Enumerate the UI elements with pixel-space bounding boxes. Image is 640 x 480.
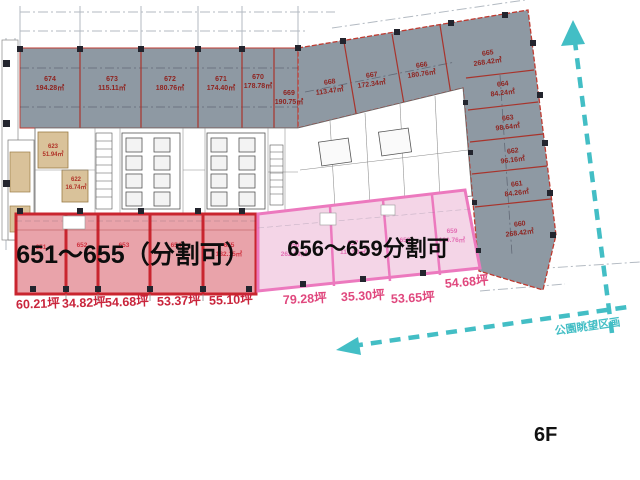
room-area: 190.75㎡ <box>275 97 303 106</box>
room-area: 51.94㎡ <box>42 150 63 158</box>
tsubo-651: 60.21坪 <box>16 296 61 312</box>
room-number: 673 <box>106 76 118 83</box>
tsubo-658: 53.65坪 <box>391 290 436 306</box>
red-zone-title: 651～655（分割可） <box>16 240 249 269</box>
up-arrow-line <box>575 42 612 333</box>
room-area: 180.76㎡ <box>156 83 184 92</box>
tsubo-653: 54.68坪 <box>105 294 150 310</box>
room-number: 623 <box>48 144 59 150</box>
room-number: 662 <box>507 147 520 155</box>
tsubo-654: 53.37坪 <box>157 293 202 309</box>
room-number: 663 <box>502 114 515 122</box>
floor-plan-page: 674 194.28㎡ 673 115.11㎡ 672 180.76㎡ 671 … <box>0 0 640 480</box>
up-arrow-head-icon <box>561 20 585 46</box>
room-number: 659 <box>447 228 458 235</box>
tsubo-656: 79.28坪 <box>283 291 328 307</box>
tsubo-655: 55.10坪 <box>209 292 254 308</box>
tsubo-652: 34.82坪 <box>62 295 107 311</box>
tsubo-659: 54.68坪 <box>444 273 489 291</box>
room-number: 670 <box>252 74 264 81</box>
room-number: 671 <box>215 76 227 83</box>
room-number: 622 <box>71 177 82 183</box>
floor-plan: 674 194.28㎡ 673 115.11㎡ 672 180.76㎡ 671 … <box>0 0 640 480</box>
room-area: 178.78㎡ <box>244 81 272 90</box>
room-number: 674 <box>44 76 56 83</box>
tsubo-657: 35.30坪 <box>341 288 386 304</box>
room-number: 669 <box>283 90 295 97</box>
room-area: 194.28㎡ <box>36 83 64 92</box>
pink-zone-title: 656～659分割可 <box>287 236 448 261</box>
room-area: 115.11㎡ <box>98 83 126 92</box>
room-number: 661 <box>511 180 524 188</box>
room-623 <box>38 132 68 168</box>
room-area: 16.74㎡ <box>65 183 86 191</box>
floor-label: 6F <box>534 424 557 446</box>
room-number: 672 <box>164 76 176 83</box>
service-room <box>10 152 30 192</box>
room-number: 664 <box>497 80 510 88</box>
room-number: 660 <box>514 220 527 228</box>
left-arrow-head-icon <box>336 337 361 355</box>
room-area: 174.40㎡ <box>207 83 235 92</box>
